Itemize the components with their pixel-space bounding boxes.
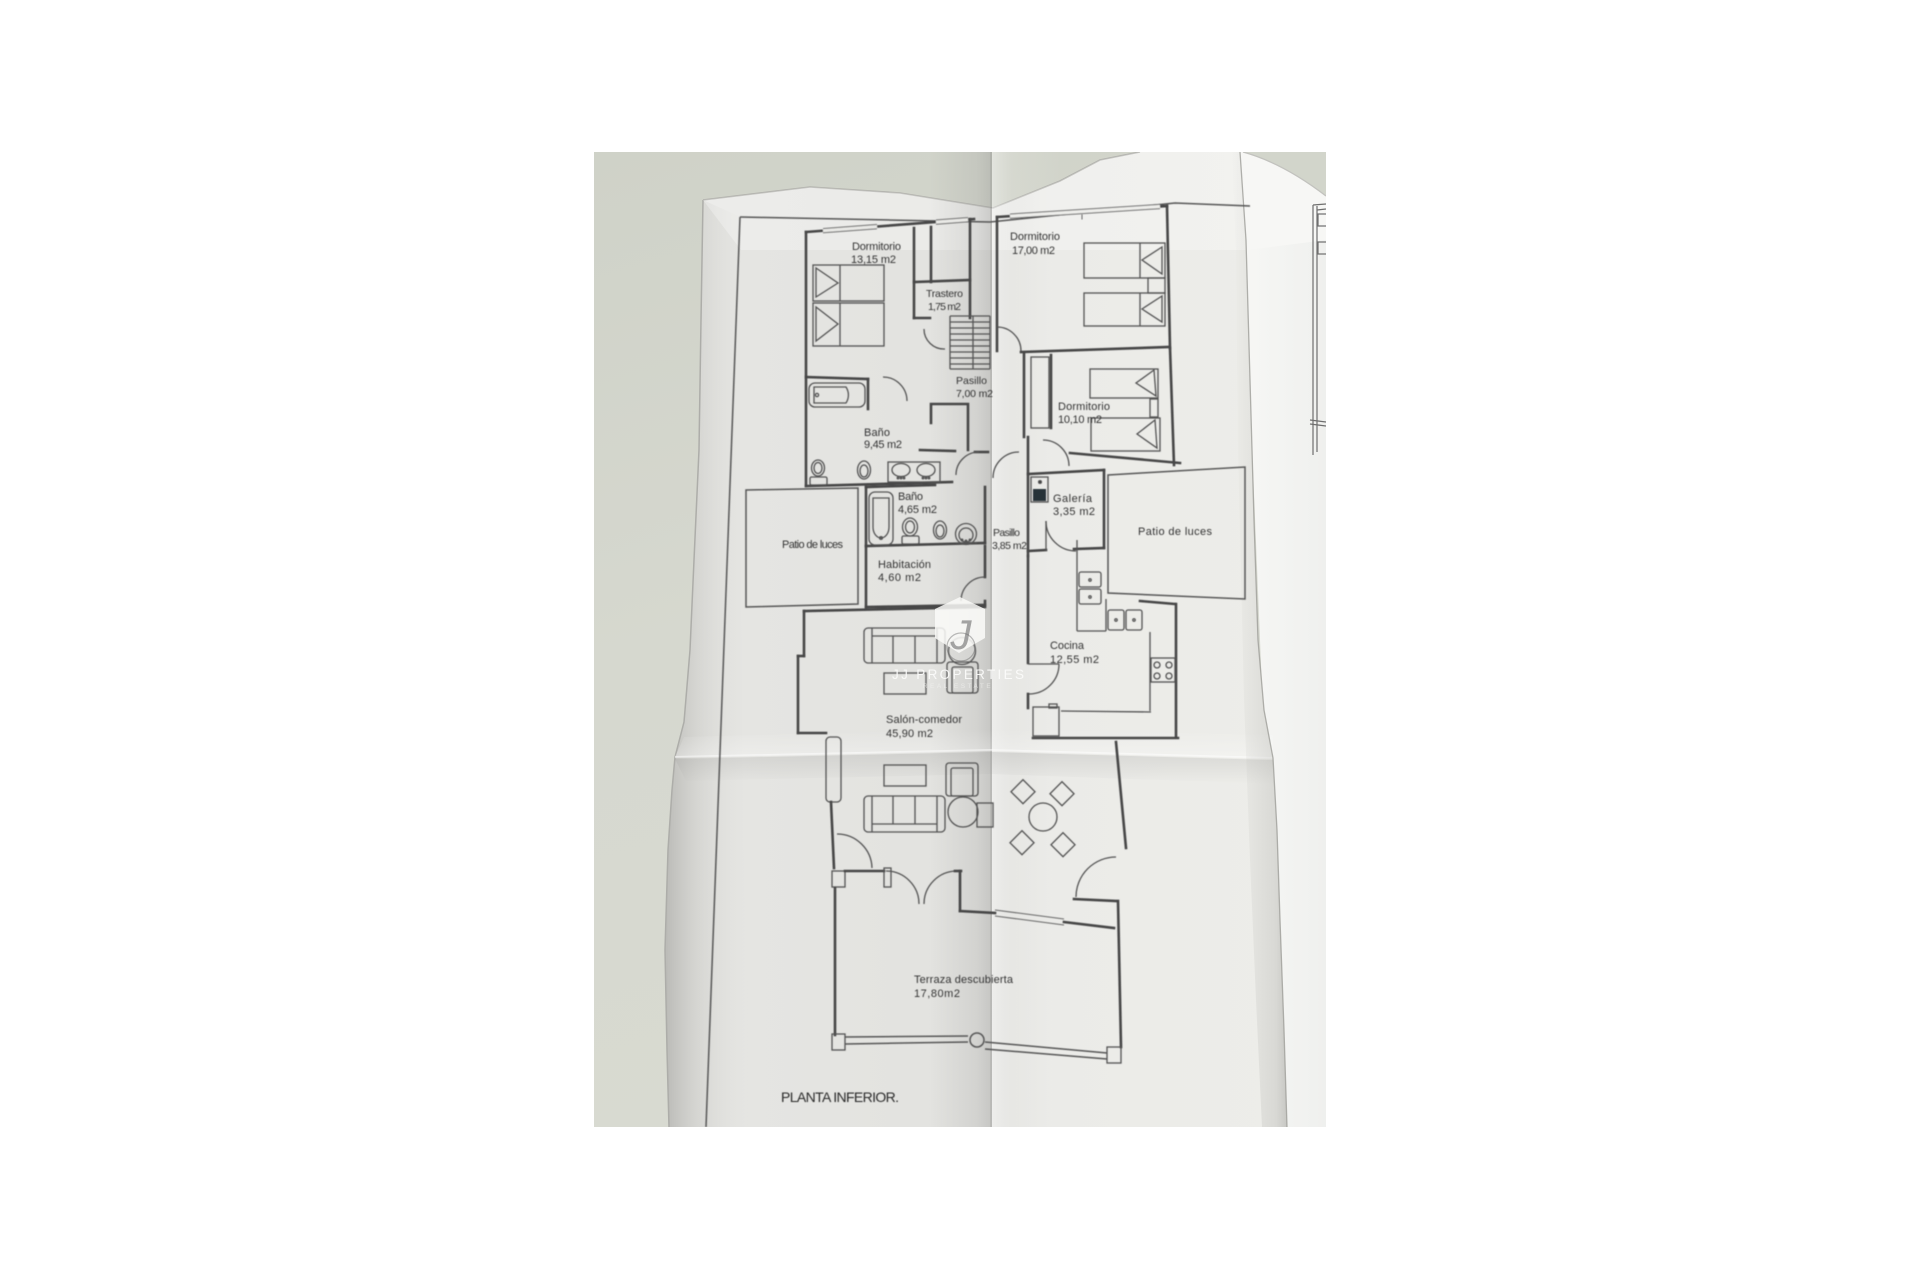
svg-text:13,15 m2: 13,15 m2 — [851, 254, 896, 266]
svg-text:Baño: Baño — [864, 427, 890, 439]
svg-text:12,55 m2: 12,55 m2 — [1050, 654, 1099, 666]
svg-text:J: J — [950, 611, 973, 658]
svg-text:3,85 m2: 3,85 m2 — [992, 540, 1027, 552]
svg-text:Dormitorio: Dormitorio — [1058, 401, 1110, 413]
svg-text:Pasillo: Pasillo — [993, 527, 1020, 539]
svg-text:Galería: Galería — [1053, 493, 1093, 505]
svg-text:Habitación: Habitación — [878, 559, 931, 571]
svg-text:PLANTA INFERIOR.: PLANTA INFERIOR. — [781, 1089, 899, 1105]
svg-text:45,90 m2: 45,90 m2 — [886, 728, 933, 740]
svg-text:4,60 m2: 4,60 m2 — [878, 572, 921, 584]
svg-text:17,00 m2: 17,00 m2 — [1012, 245, 1055, 257]
svg-text:9,45 m2: 9,45 m2 — [864, 439, 902, 451]
svg-text:10,10 m2: 10,10 m2 — [1058, 414, 1102, 426]
svg-text:1,75 m2: 1,75 m2 — [928, 301, 961, 313]
svg-text:Dormitorio: Dormitorio — [1010, 231, 1060, 243]
svg-text:Baño: Baño — [898, 491, 923, 503]
svg-text:Dormitorio: Dormitorio — [852, 241, 901, 253]
svg-text:Cocina: Cocina — [1050, 640, 1085, 652]
svg-text:Patio de luces: Patio de luces — [782, 539, 844, 551]
svg-text:3,35 m2: 3,35 m2 — [1053, 506, 1095, 518]
svg-text:Salón-comedor: Salón-comedor — [886, 714, 962, 726]
svg-text:Patio de luces: Patio de luces — [1138, 526, 1213, 538]
svg-text:REAL ESTATE: REAL ESTATE — [923, 683, 993, 690]
svg-text:Terraza descubierta: Terraza descubierta — [914, 974, 1014, 986]
svg-text:JJ PROPERTIES: JJ PROPERTIES — [892, 667, 1028, 682]
svg-text:17,80m2: 17,80m2 — [914, 988, 960, 1000]
svg-text:Trastero: Trastero — [926, 288, 963, 300]
svg-text:Pasillo: Pasillo — [956, 375, 987, 387]
svg-text:7,00 m2: 7,00 m2 — [956, 388, 993, 400]
svg-text:4,65 m2: 4,65 m2 — [898, 504, 937, 516]
